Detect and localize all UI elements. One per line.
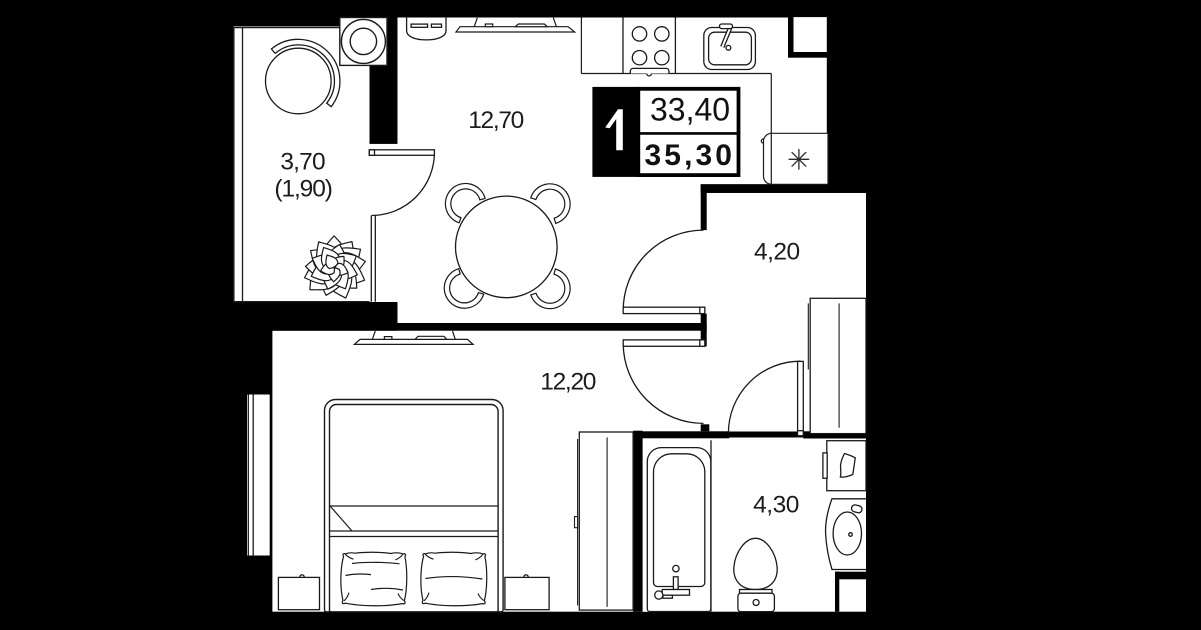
svg-text:33,40: 33,40 bbox=[650, 91, 730, 127]
svg-text:12,20: 12,20 bbox=[540, 369, 595, 396]
svg-text:3,70: 3,70 bbox=[280, 149, 325, 176]
svg-text:4,30: 4,30 bbox=[753, 491, 799, 518]
svg-text:12,70: 12,70 bbox=[468, 107, 523, 134]
svg-text:4,20: 4,20 bbox=[754, 238, 800, 265]
svg-text:(1,90): (1,90) bbox=[274, 176, 331, 203]
svg-text:35,30: 35,30 bbox=[645, 139, 736, 172]
